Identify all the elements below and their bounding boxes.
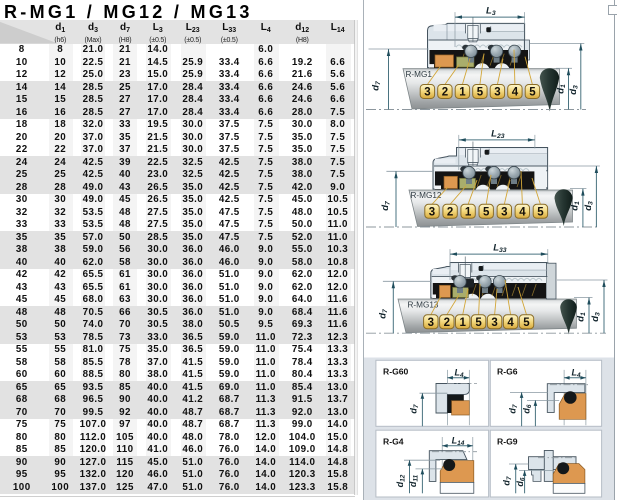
svg-text:d3: d3 — [568, 85, 580, 95]
svg-text:d7: d7 — [371, 80, 383, 91]
svg-text:2: 2 — [444, 317, 450, 329]
svg-text:R-G9: R-G9 — [497, 437, 518, 447]
svg-text:3: 3 — [491, 317, 497, 329]
svg-text:L33: L33 — [493, 243, 507, 255]
svg-text:R-G60: R-G60 — [383, 367, 409, 377]
svg-text:4: 4 — [512, 87, 519, 99]
svg-text:3: 3 — [494, 87, 500, 99]
svg-text:5: 5 — [529, 87, 536, 99]
svg-text:1: 1 — [459, 87, 466, 99]
svg-text:5: 5 — [483, 207, 490, 219]
svg-text:4: 4 — [507, 317, 514, 329]
svg-text:4: 4 — [519, 207, 526, 219]
svg-text:R-G6: R-G6 — [497, 367, 518, 377]
svg-text:2: 2 — [442, 87, 448, 99]
svg-text:1: 1 — [459, 317, 466, 329]
svg-text:5: 5 — [537, 207, 544, 219]
svg-text:d3: d3 — [590, 312, 602, 322]
svg-text:3: 3 — [501, 207, 507, 219]
svg-text:3: 3 — [428, 317, 434, 329]
svg-text:R-G4: R-G4 — [383, 437, 404, 447]
svg-text:d1: d1 — [576, 312, 588, 322]
svg-text:d7: d7 — [378, 308, 390, 319]
svg-text:L3: L3 — [486, 6, 496, 18]
svg-text:L23: L23 — [491, 128, 505, 140]
svg-text:d7: d7 — [380, 200, 392, 211]
svg-text:3: 3 — [429, 207, 435, 219]
svg-text:3: 3 — [424, 87, 430, 99]
svg-text:1: 1 — [465, 207, 472, 219]
svg-text:R-MG1: R-MG1 — [406, 70, 433, 79]
svg-text:2: 2 — [447, 207, 453, 219]
svg-text:d3: d3 — [583, 201, 595, 211]
svg-text:5: 5 — [523, 317, 530, 329]
svg-text:5: 5 — [475, 317, 482, 329]
svg-text:5: 5 — [477, 87, 484, 99]
